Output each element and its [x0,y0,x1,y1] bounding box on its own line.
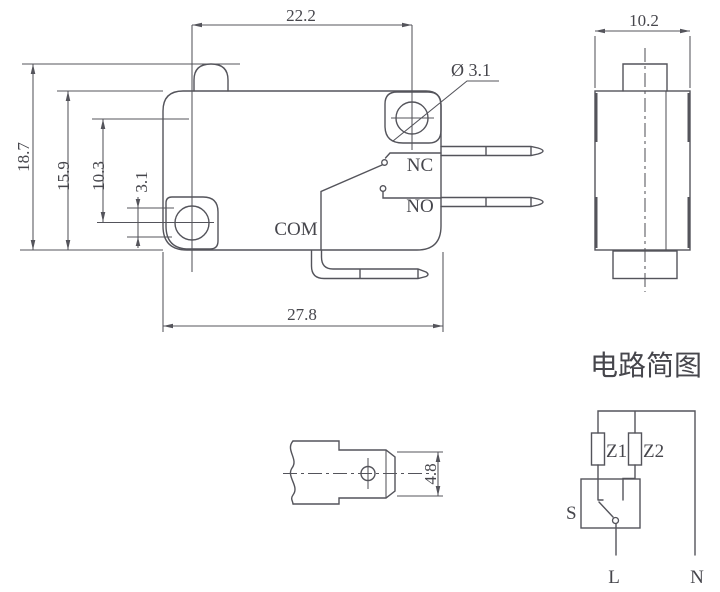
terminal-detail-view: 4.8 [283,441,443,504]
side-view-dimension: 10.2 [595,11,690,88]
common-arm [321,165,382,250]
nc-terminal-blade [441,147,543,156]
side-view: 10.2 [595,11,690,292]
circuit-diagram: 电路简图 Z1 Z2 S L N [566,350,704,588]
impedance-z2-box [629,433,642,465]
terminal-outline [293,441,395,504]
terminal-label-nc: NC [407,155,433,176]
dim-body-height: 15.9 [54,161,73,191]
label-z1: Z1 [606,441,627,462]
break-line [290,441,295,504]
switch-contact-point [613,518,619,524]
label-s: S [566,503,577,524]
no-contact-point [380,186,386,192]
terminal-label-no: NO [406,196,433,217]
side-body [595,91,690,250]
dim-body-depth: 10.2 [629,11,659,30]
com-terminal-blade [312,251,429,279]
dim-hole-spacing-h: 22.2 [286,6,316,25]
nc-contact-point [382,160,388,166]
plunger-button [194,64,228,91]
circuit-wires [598,411,695,555]
hole-diameter-label: Ø 3.1 [451,60,491,80]
microswitch-technical-drawing: Ø 3.1 NC NO COM [0,0,720,592]
label-n: N [690,567,704,588]
dim-terminal-width: 4.8 [421,463,440,484]
dim-hole-size: 3.1 [132,171,151,192]
impedance-z1-box [592,433,605,465]
leader-line [393,81,499,141]
front-view: Ø 3.1 NC NO COM [97,25,543,279]
hole-diameter-callout: Ø 3.1 [393,60,499,141]
terminal-label-com: COM [274,219,317,240]
dim-total-height: 18.7 [14,142,33,172]
circuit-title: 电路简图 [590,350,702,382]
dim-hole-spacing-v: 10.3 [89,161,108,191]
switch-lever [599,502,613,517]
no-terminal-blade [441,198,543,207]
extension-lines [20,64,443,332]
side-edge-ribs [596,93,689,248]
label-l: L [608,567,620,588]
dim-body-width: 27.8 [287,305,317,324]
switch-box [581,479,640,528]
label-z2: Z2 [643,441,664,462]
hole-centerlines [97,25,434,272]
front-view-dimensions: 22.2 18.7 15.9 10.3 3.1 27.8 [14,6,443,332]
